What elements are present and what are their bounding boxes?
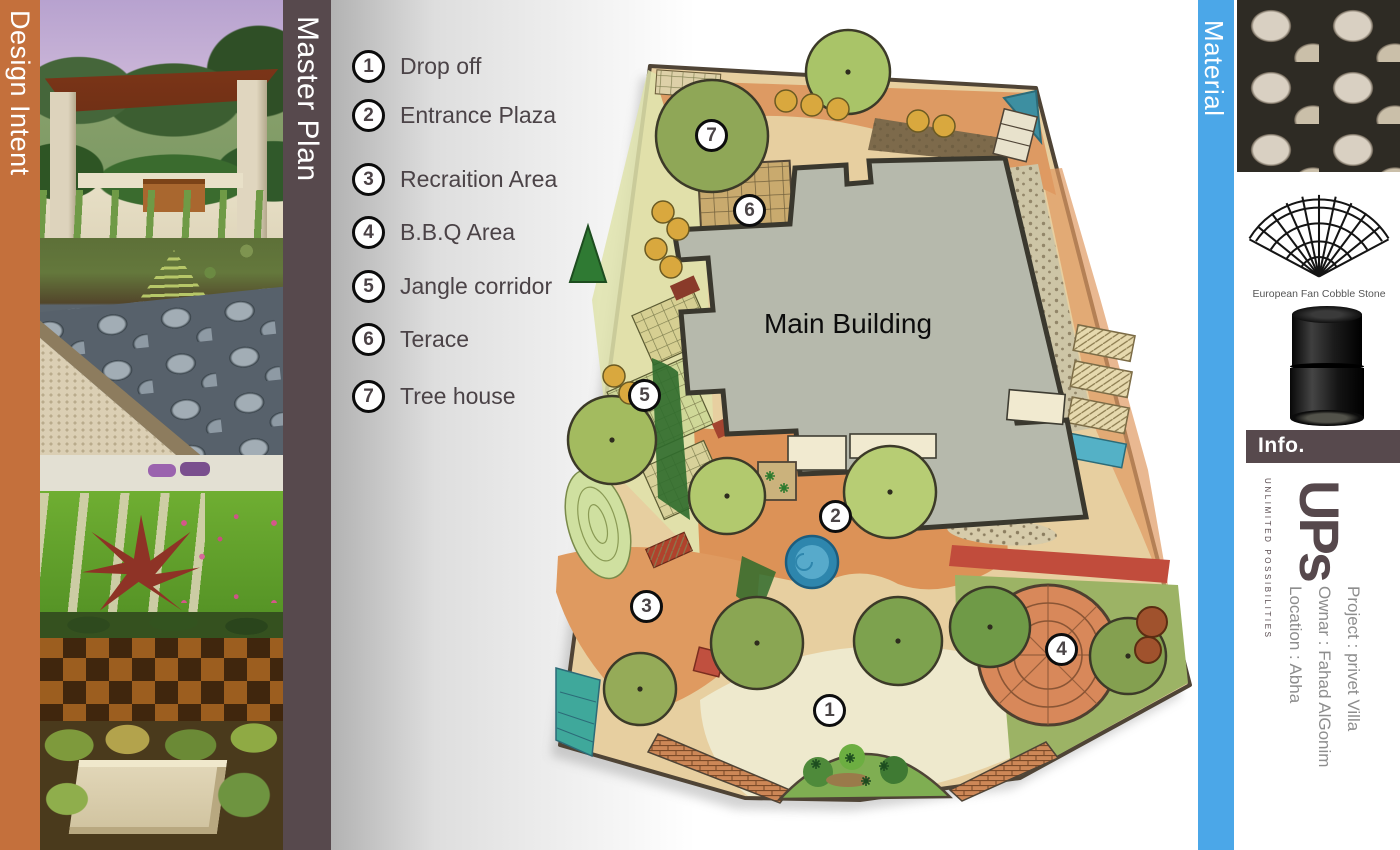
legend-item: 3 Recraition Area [352, 163, 557, 196]
legend-number: 5 [352, 270, 385, 303]
legend-item: 5 Jangle corridor [352, 270, 557, 303]
plan-marker-1: 1 [813, 694, 846, 727]
plan-legend: 1 Drop off 2 Entrance Plaza 3 Recraition… [352, 50, 557, 413]
photo-beige-pebbles [1237, 0, 1400, 172]
info-header: Info. [1246, 430, 1400, 463]
legend-number: 6 [352, 323, 385, 356]
master-plan-drawing: Main Building [520, 25, 1210, 825]
brand-tagline: UNLIMITED POSSIBILITIES [1263, 478, 1272, 640]
legend-item: 6 Terace [352, 323, 557, 356]
legend-item: 4 B.B.Q Area [352, 216, 557, 249]
material-bar [1198, 0, 1234, 850]
grass-clump [199, 750, 283, 840]
legend-label: Tree house [400, 383, 516, 410]
grass-clump [40, 769, 102, 829]
brand-logo: UPs [1287, 480, 1352, 580]
plan-marker-2: 2 [819, 500, 852, 533]
plan-marker-4: 4 [1045, 633, 1078, 666]
plan-marker-6: 6 [733, 194, 766, 227]
project-line: Project : privet Villa [1339, 586, 1368, 767]
main-building-label: Main Building [764, 308, 932, 339]
plan-marker-7: 7 [695, 119, 728, 152]
material-title: Material [1198, 20, 1229, 116]
legend-number: 2 [352, 99, 385, 132]
legend-label: Recraition Area [400, 166, 557, 193]
legend-label: Drop off [400, 53, 481, 80]
legend-label: Jangle corridor [400, 273, 552, 300]
water-feature [786, 536, 838, 588]
conifer-tree [570, 226, 606, 282]
plan-marker-5: 5 [628, 379, 661, 412]
legend-item: 1 Drop off [352, 50, 557, 83]
master-plan-title: Master Plan [290, 16, 324, 182]
climbing-vegetation [40, 612, 283, 638]
legend-number: 3 [352, 163, 385, 196]
grass-joint-paving [40, 190, 283, 238]
photo-pergola-patio [40, 0, 283, 238]
photo-pebble-garden [40, 238, 283, 455]
garden-cushion [148, 464, 176, 477]
legend-number: 1 [352, 50, 385, 83]
project-info: Project : privet Villa Ownar : Fahad AlG… [1281, 586, 1368, 767]
photo-corten-garden [40, 612, 283, 850]
fan-cobble-diagram [1244, 180, 1394, 282]
design-intent-title: Design Intent [4, 10, 35, 176]
presentation-board: Design Intent Master Plan Material 1 Dr [0, 0, 1400, 850]
garden-cushion [180, 462, 210, 476]
legend-item: 7 Tree house [352, 380, 557, 413]
cylinder-lens [1290, 410, 1364, 426]
cylinder-light-fixture [1290, 306, 1364, 428]
legend-number: 4 [352, 216, 385, 249]
legend-number: 7 [352, 380, 385, 413]
teal-steps-fan [556, 668, 600, 756]
legend-label: B.B.Q Area [400, 219, 515, 246]
fan-caption: European Fan Cobble Stone [1238, 288, 1400, 300]
location-line: Location : Abha [1281, 586, 1310, 767]
legend-label: Terace [400, 326, 469, 353]
legend-item: 2 Entrance Plaza [352, 99, 557, 132]
plan-marker-3: 3 [630, 590, 663, 623]
owner-line: Ownar : Fahad AlGonim [1310, 586, 1339, 767]
cylinder-top [1292, 306, 1362, 323]
pink-flowers [166, 499, 283, 603]
legend-label: Entrance Plaza [400, 102, 556, 129]
photo-lawn-terrace [40, 455, 283, 612]
